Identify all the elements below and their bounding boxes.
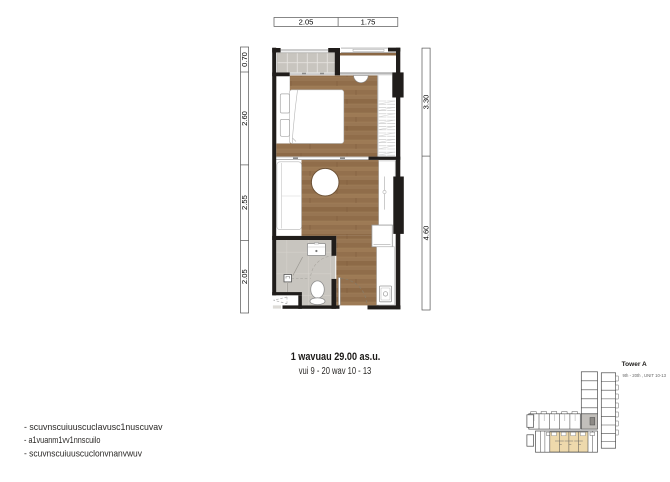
svg-text:- scuvnscuiuuscuclonvnanvwuv: - scuvnscuiuuscuclonvnanvwuv bbox=[24, 449, 142, 460]
svg-text:2.05: 2.05 bbox=[299, 17, 314, 26]
svg-text:9th - 20th , UNIT 10-13: 9th - 20th , UNIT 10-13 bbox=[623, 373, 667, 379]
svg-text:4.60: 4.60 bbox=[422, 226, 431, 241]
svg-text:2.60: 2.60 bbox=[240, 111, 249, 126]
svg-text:2.55: 2.55 bbox=[240, 195, 249, 210]
svg-text:1 wavuau 29.00 as.u.: 1 wavuau 29.00 as.u. bbox=[291, 351, 381, 363]
svg-text:3.30: 3.30 bbox=[422, 95, 431, 110]
svg-text:2.05: 2.05 bbox=[240, 269, 249, 284]
svg-text:1.75: 1.75 bbox=[361, 17, 376, 26]
svg-text:Tower A: Tower A bbox=[622, 361, 647, 368]
svg-text:0.70: 0.70 bbox=[240, 52, 249, 67]
svg-text:vui 9 - 20 wav 10 - 13: vui 9 - 20 wav 10 - 13 bbox=[299, 366, 372, 377]
svg-text:- scuvnscuiuuscuclavusc1nuscuv: - scuvnscuiuuscuclavusc1nuscuvav bbox=[24, 422, 163, 433]
svg-text:- a1vuanm1vv1nnscuilo: - a1vuanm1vv1nnscuilo bbox=[24, 435, 100, 446]
